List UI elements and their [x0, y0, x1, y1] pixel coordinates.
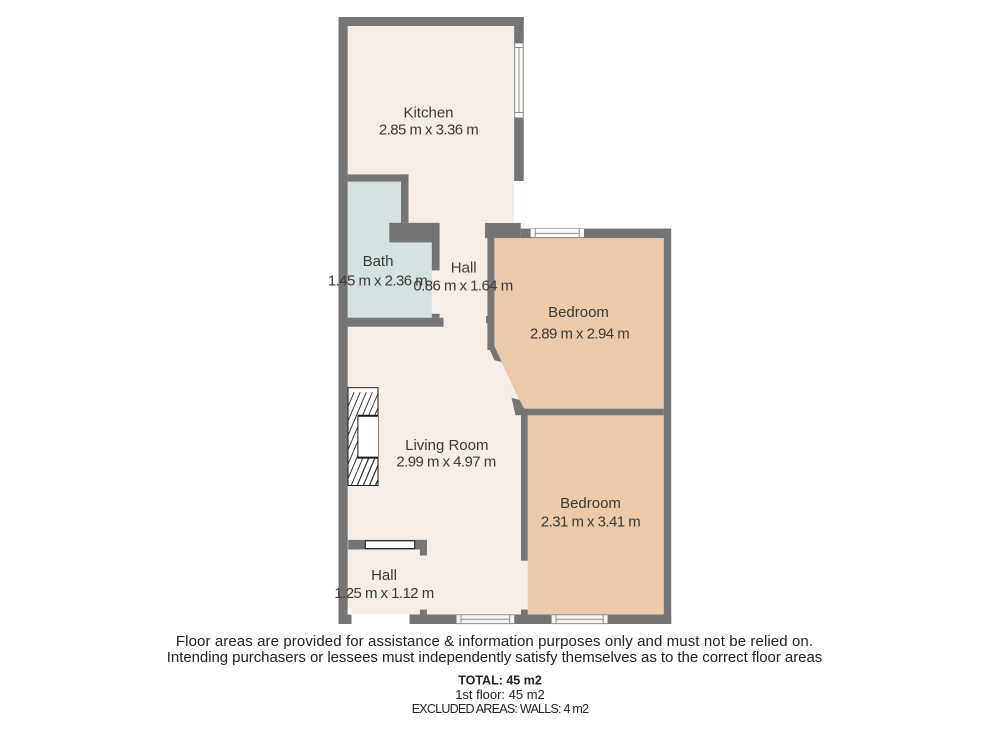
svg-text:2.85 m x 3.36 m: 2.85 m x 3.36 m	[379, 122, 478, 139]
svg-text:EXCLUDED AREAS: WALLS: 4 m2: EXCLUDED AREAS: WALLS: 4 m2	[412, 702, 589, 716]
svg-text:1.25 m x 1.12 m: 1.25 m x 1.12 m	[334, 585, 433, 602]
svg-text:2.31 m x 3.41 m: 2.31 m x 3.41 m	[541, 513, 640, 530]
svg-text:1.45 m x 2.36 m: 1.45 m x 2.36 m	[328, 273, 427, 290]
svg-text:2.99 m x 4.97 m: 2.99 m x 4.97 m	[396, 453, 495, 470]
svg-text:0.86 m x 1.64 m: 0.86 m x 1.64 m	[413, 278, 512, 295]
svg-text:Bath: Bath	[363, 253, 394, 270]
svg-text:Hall: Hall	[371, 567, 397, 584]
svg-text:Bedroom: Bedroom	[548, 304, 609, 321]
svg-text:2.89 m x 2.94 m: 2.89 m x 2.94 m	[530, 326, 629, 343]
svg-text:Intending purchasers or lessee: Intending purchasers or lessees must ind…	[167, 649, 822, 666]
svg-text:Hall: Hall	[451, 260, 477, 277]
svg-text:Kitchen: Kitchen	[403, 104, 453, 121]
svg-text:Floor areas are provided for a: Floor areas are provided for assistance …	[176, 633, 813, 650]
svg-text:Living Room: Living Room	[405, 437, 488, 454]
svg-text:TOTAL: 45 m2: TOTAL: 45 m2	[458, 674, 542, 688]
svg-text:Bedroom: Bedroom	[560, 495, 621, 512]
svg-text:1st floor: 45 m2: 1st floor: 45 m2	[455, 687, 545, 702]
